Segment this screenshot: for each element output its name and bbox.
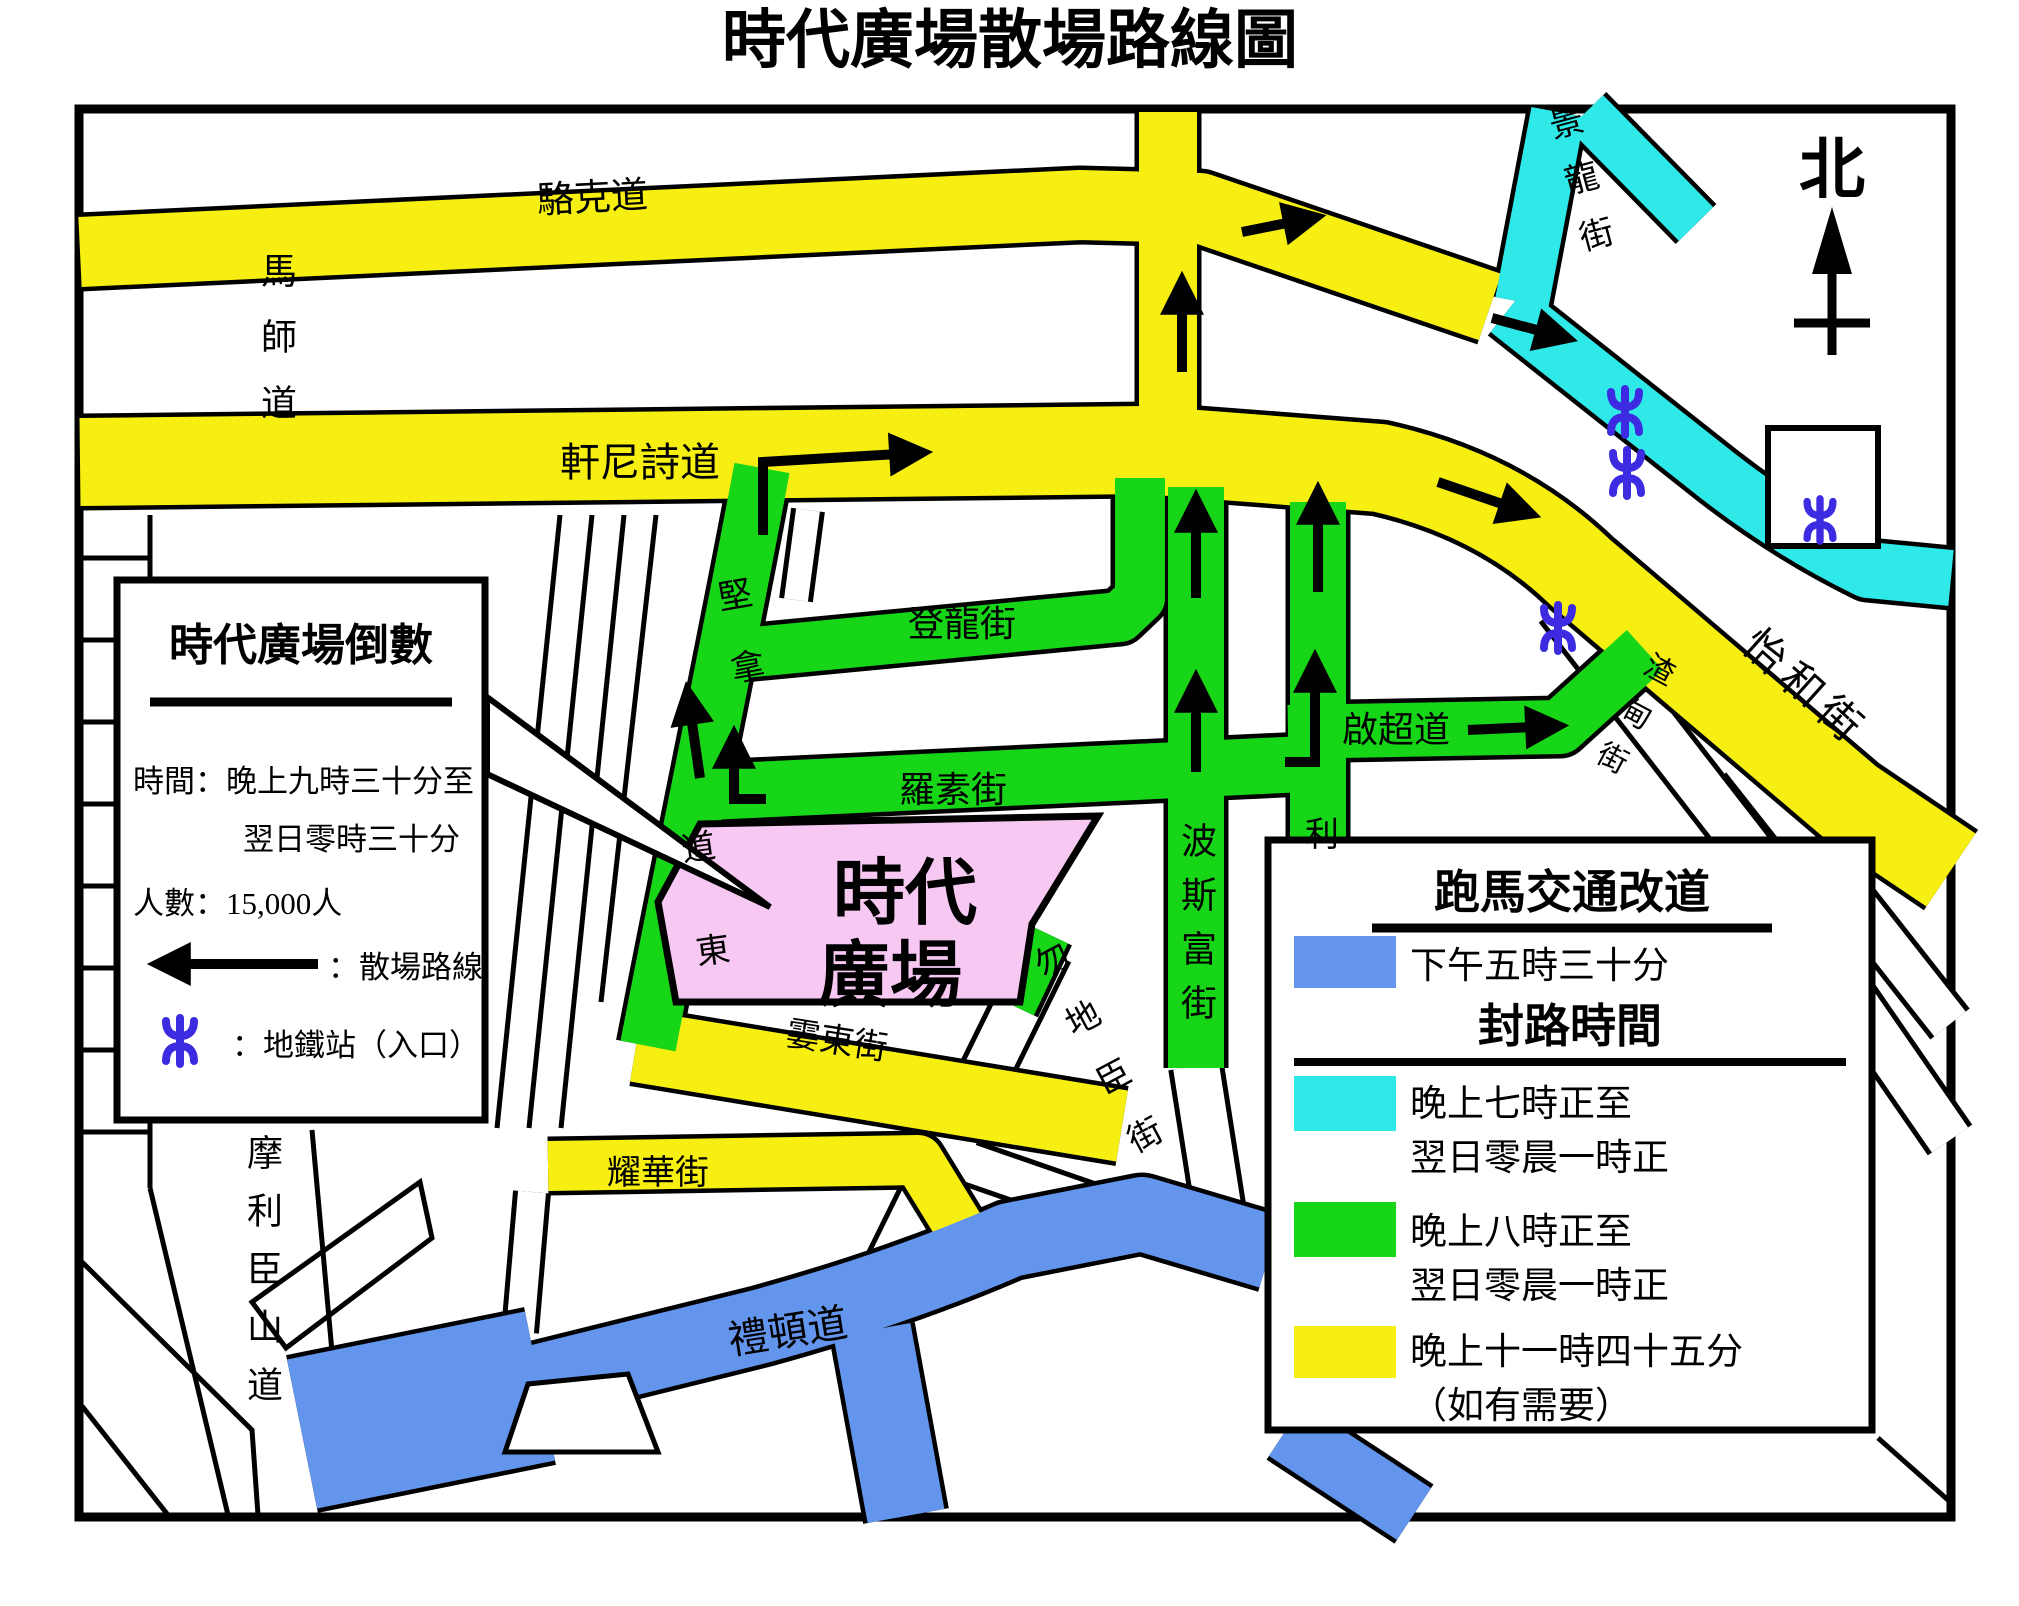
legend-green-line-2: 翌日零晨一時正 xyxy=(1410,1266,1669,1307)
label-morrison-hill: 摩利臣山道 xyxy=(242,1134,283,1424)
legend-cyan-line-2: 翌日零晨一時正 xyxy=(1410,1138,1669,1179)
legend-yellow-line-2: （如有需要） xyxy=(1410,1386,1632,1427)
label-lee-garden: 利 xyxy=(1305,817,1339,854)
page-title: 時代廣場散場路線圖 xyxy=(722,5,1298,76)
legend-countdown-time-2: 翌日零時三十分 xyxy=(243,822,460,857)
blue-swatch xyxy=(1294,936,1396,988)
label-percival: 波斯富街 xyxy=(1176,822,1217,1038)
leighton-white-block xyxy=(505,1374,658,1452)
map-canvas: 時代廣場散場路線圖 xyxy=(0,0,2019,1606)
label-hennessy: 軒尼詩道 xyxy=(560,440,720,485)
legend-countdown-people: 人數：15,000人 xyxy=(133,886,342,921)
label-lockhart: 駱克道 xyxy=(536,174,649,222)
legend-countdown-mtr: ：地鐵站（入口） xyxy=(232,1028,480,1063)
legend-countdown: 時代廣場倒數 時間：晚上九時三十分至 翌日零時三十分 人數：15,000人 ：散… xyxy=(117,580,485,1120)
legend-blue-label: 下午五時三十分 xyxy=(1410,945,1669,987)
legend-closures-subtitle: 封路時間 xyxy=(1478,1001,1662,1052)
legend-cyan-line-1: 晚上七時正至 xyxy=(1410,1084,1632,1125)
legend-countdown-title: 時代廣場倒數 xyxy=(169,621,433,670)
green-swatch xyxy=(1294,1202,1396,1257)
label-kai-chiu: 啟超道 xyxy=(1342,710,1450,750)
cyan-swatch xyxy=(1294,1076,1396,1131)
label-yiu-wa: 耀華街 xyxy=(607,1154,709,1192)
times-square-name-1: 時代 xyxy=(833,854,977,934)
yellow-swatch xyxy=(1294,1326,1396,1378)
label-marsh: 馬師道 xyxy=(256,252,296,450)
legend-green-line-1: 晚上八時正至 xyxy=(1410,1212,1632,1253)
label-tang-lung: 登龍街 xyxy=(908,604,1016,644)
times-square-name-2: 廣場 xyxy=(818,936,962,1016)
north-label: 北 xyxy=(1799,134,1865,207)
label-russell: 羅素街 xyxy=(899,770,1007,810)
legend-closures: 跑馬交通改道 下午五時三十分 封路時間 晚上七時正至 翌日零晨一時正 晚上八時正… xyxy=(1268,840,1872,1430)
legend-countdown-route: ：散場路線 xyxy=(328,950,483,985)
dispersal-route-map: 時代廣場散場路線圖 xyxy=(0,0,2019,1606)
legend-yellow-line-1: 晚上十一時四十五分 xyxy=(1410,1332,1743,1373)
legend-closures-title: 跑馬交通改道 xyxy=(1434,867,1710,918)
legend-countdown-time-1: 時間：晚上九時三十分至 xyxy=(133,764,474,799)
